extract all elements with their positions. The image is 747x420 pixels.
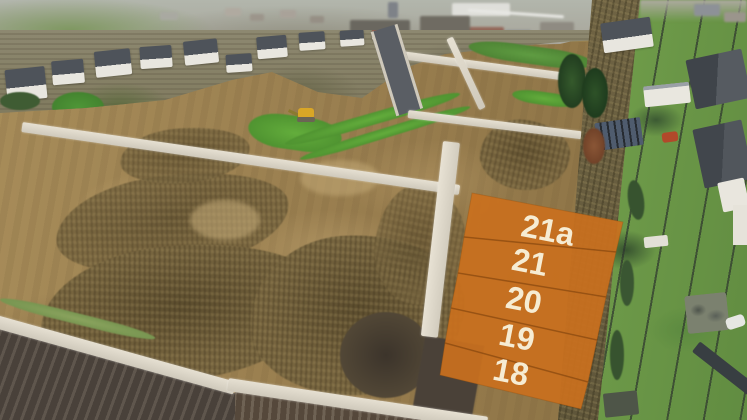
aerial-photo: 21a 21 20 19 18 [0, 0, 747, 420]
plot-overlay: 21a 21 20 19 18 [0, 0, 747, 420]
plot-label-18: 18 [490, 351, 532, 393]
plot-label-21: 21 [509, 241, 551, 283]
plot-label-20: 20 [503, 279, 545, 321]
